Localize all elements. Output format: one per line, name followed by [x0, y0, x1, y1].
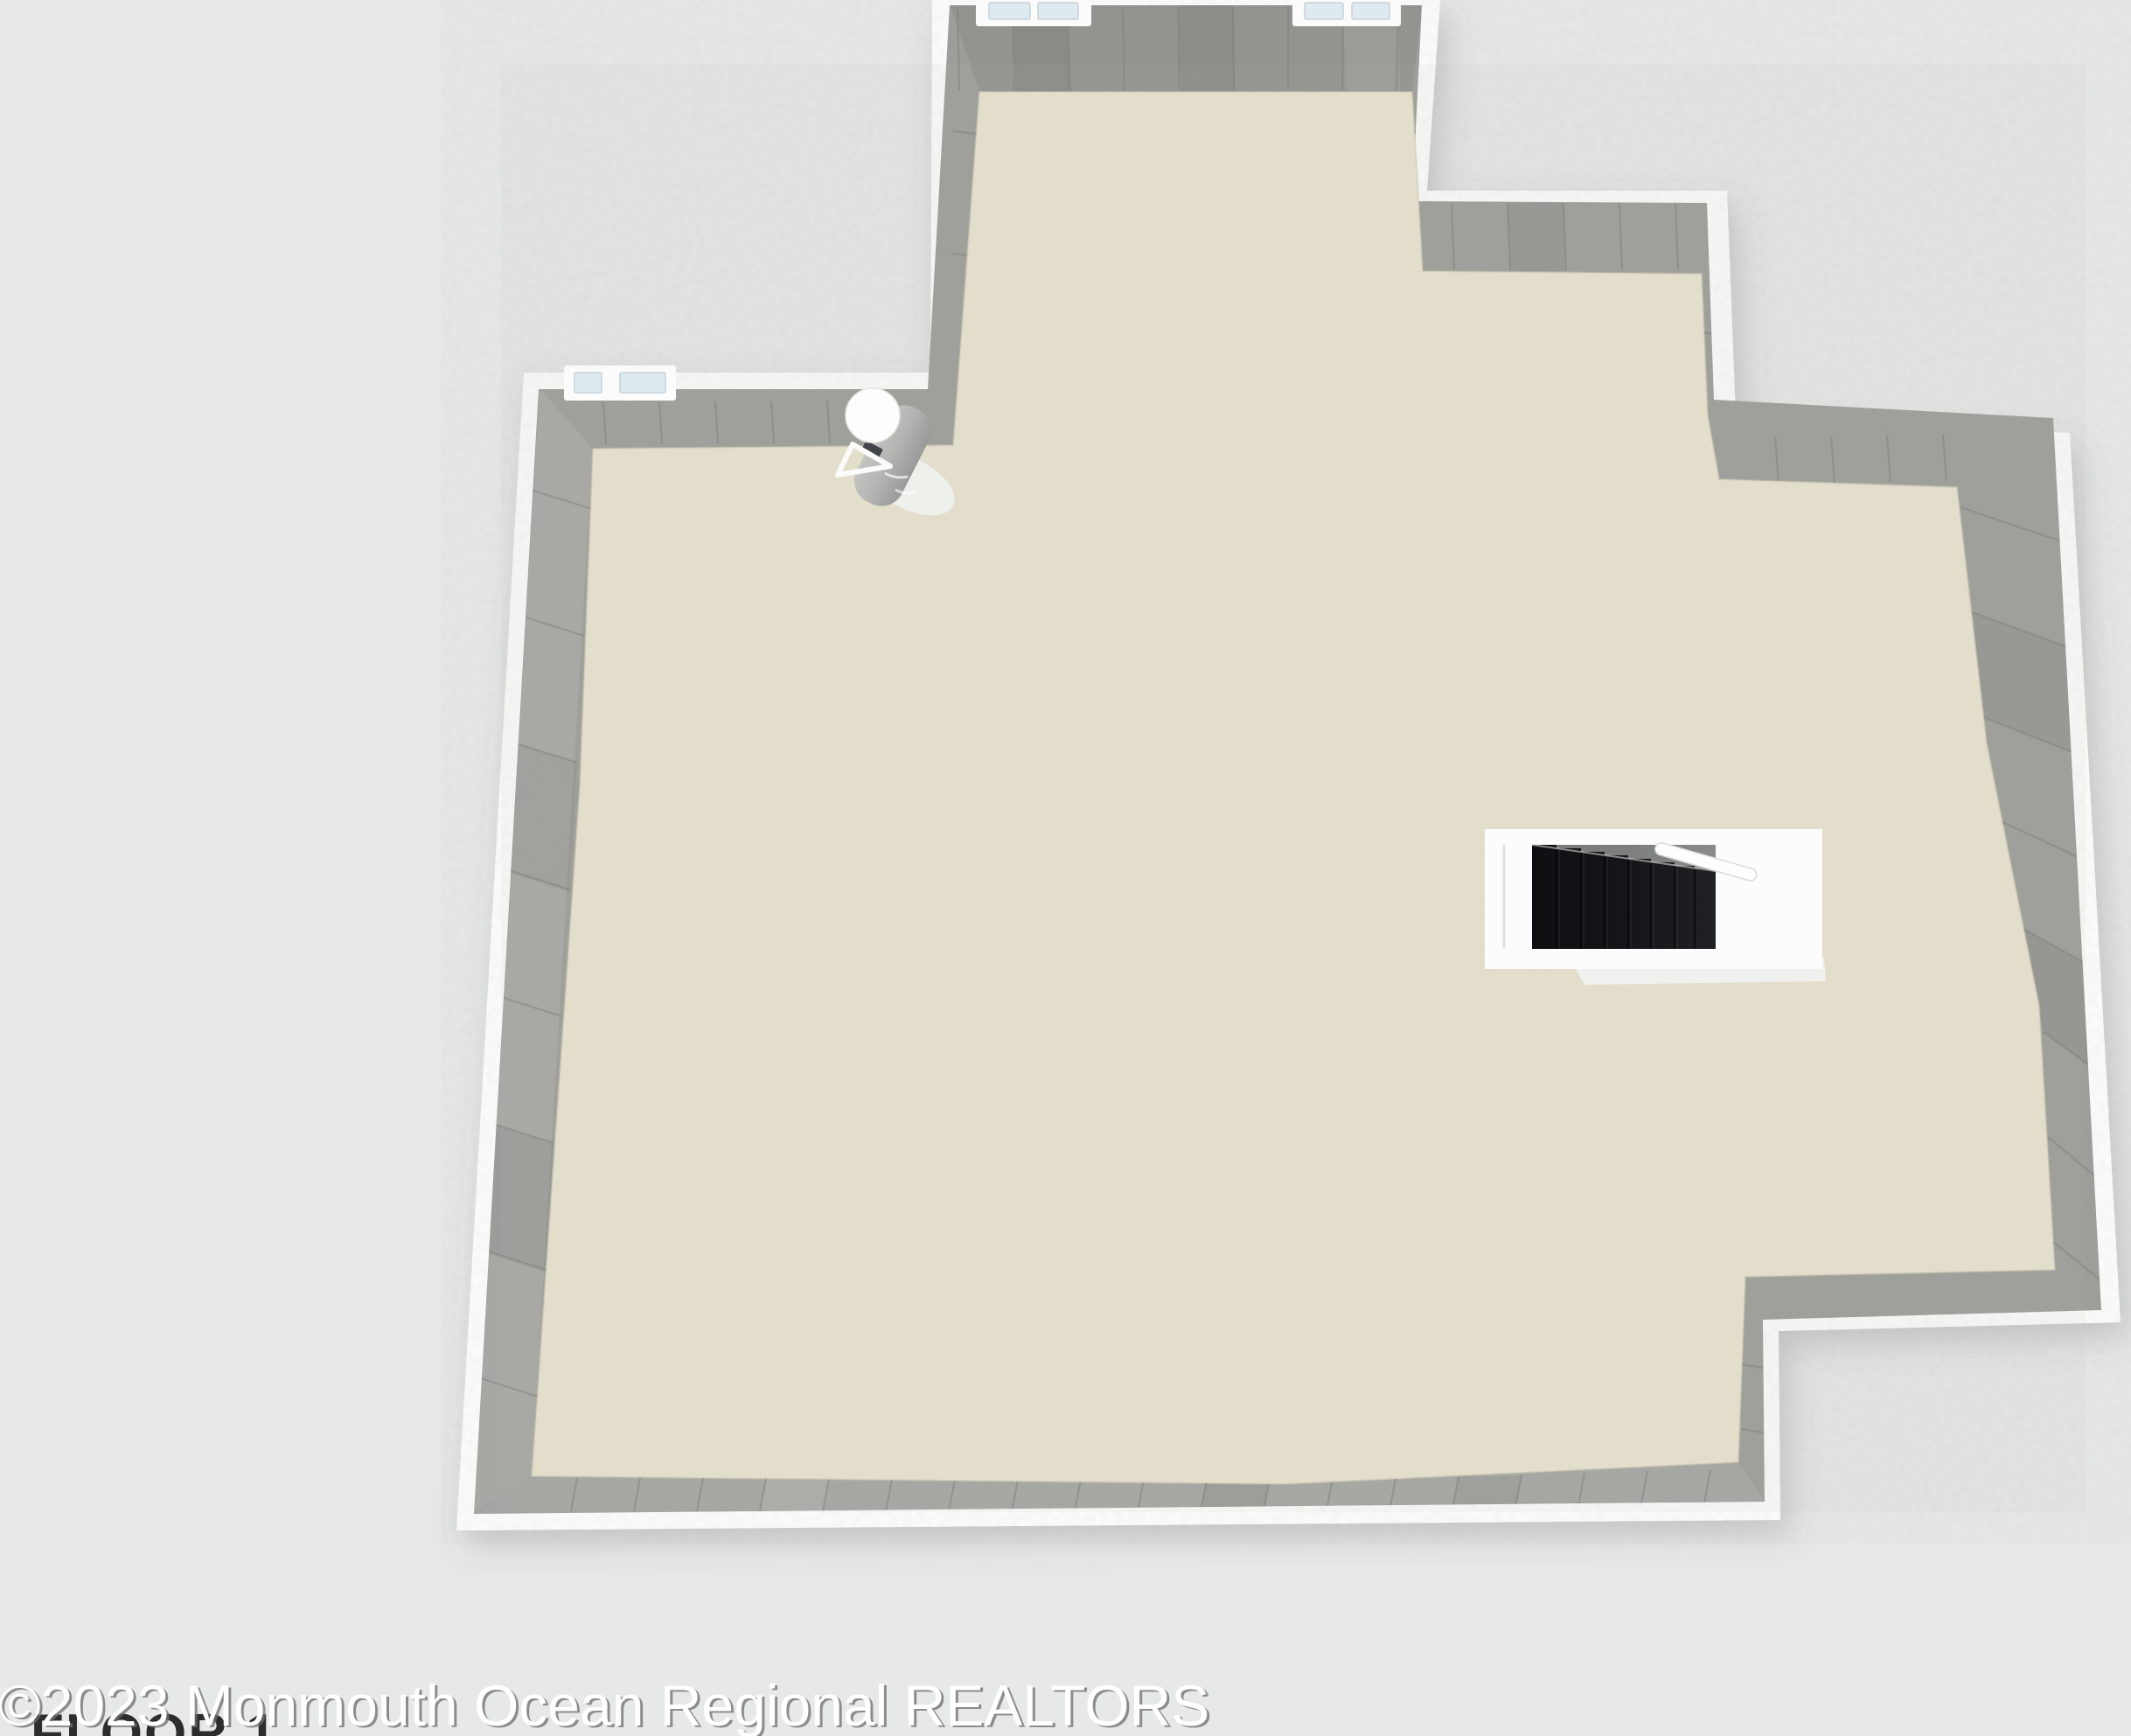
watermark-text: ©2023 Monmouth Ocean Regional REALTORS	[0, 1673, 1209, 1736]
staircase	[1485, 829, 1826, 985]
floor-plan-image: FLOOR 1 ©2023 Monmouth Ocean Regional RE…	[0, 0, 2131, 1736]
top-wall-window-left	[976, 0, 1091, 26]
left-step-wall-window	[564, 366, 676, 401]
top-wall-window-right	[1292, 0, 1401, 26]
